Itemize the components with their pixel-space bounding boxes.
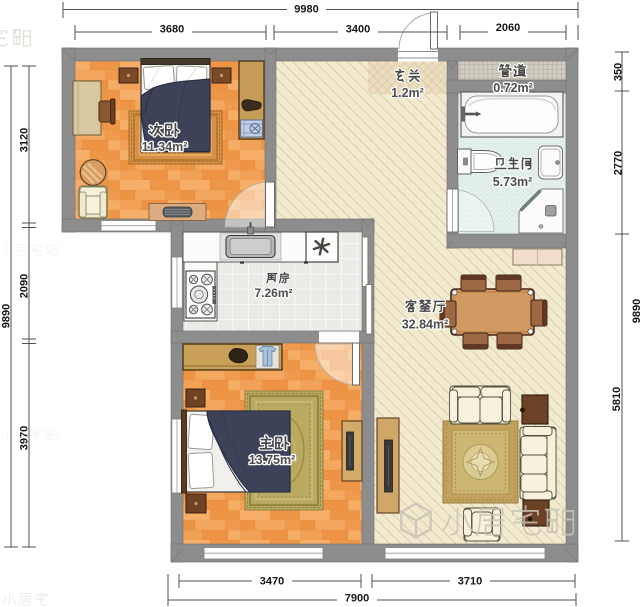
svg-text:3710: 3710 bbox=[458, 576, 482, 588]
svg-text:3120: 3120 bbox=[19, 128, 31, 152]
svg-text:9980: 9980 bbox=[294, 4, 318, 16]
svg-text:3400: 3400 bbox=[346, 24, 370, 36]
svg-text:5810: 5810 bbox=[611, 387, 623, 411]
svg-text:1.2m²: 1.2m² bbox=[391, 86, 424, 100]
svg-text:7.26m²: 7.26m² bbox=[254, 286, 292, 300]
svg-text:350: 350 bbox=[613, 63, 625, 81]
svg-text:9890: 9890 bbox=[631, 299, 640, 323]
svg-text:32.84m²: 32.84m² bbox=[402, 318, 449, 332]
svg-text:9890: 9890 bbox=[1, 304, 13, 328]
svg-text:5.73m²: 5.73m² bbox=[493, 175, 533, 189]
svg-text:11.34m²: 11.34m² bbox=[142, 140, 188, 154]
svg-text:2060: 2060 bbox=[496, 22, 520, 34]
svg-text:0.72m²: 0.72m² bbox=[493, 81, 533, 95]
svg-text:3470: 3470 bbox=[260, 576, 284, 588]
svg-text:7900: 7900 bbox=[345, 593, 369, 605]
svg-text:13.75m²: 13.75m² bbox=[249, 453, 296, 467]
svg-text:3680: 3680 bbox=[160, 24, 184, 36]
svg-text:2090: 2090 bbox=[19, 274, 31, 298]
svg-text:2770: 2770 bbox=[613, 151, 625, 175]
